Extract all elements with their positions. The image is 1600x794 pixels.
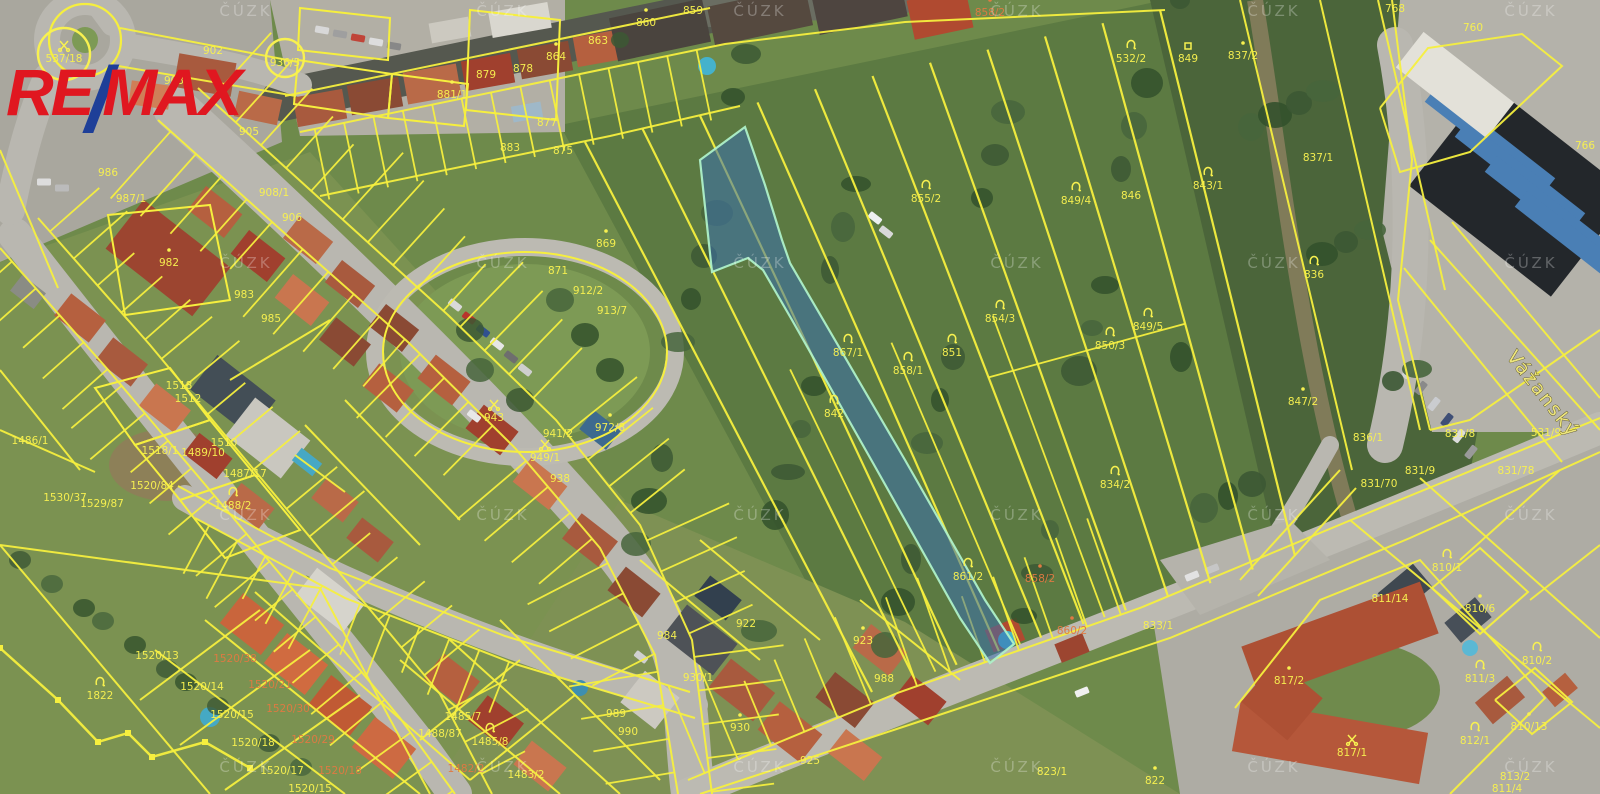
tree-canopy: [731, 44, 761, 64]
parcel-number-label: 846: [1121, 190, 1141, 202]
dot-shape: [738, 713, 742, 717]
parcel-number-label: 811/4: [1492, 783, 1523, 794]
parcel-label: 836/1: [1353, 432, 1383, 444]
parcel-number-label: 986: [98, 167, 118, 179]
tree-canopy: [1170, 342, 1192, 372]
parcel-number-label: 1530/37: [43, 492, 87, 504]
parcel-number-label: 837/1: [1303, 152, 1333, 164]
parcel-number-label: 988: [874, 673, 894, 685]
parcel-label: 1520/14: [180, 681, 224, 693]
parcel-label: 877: [537, 117, 557, 129]
cuzk-watermark: ČÚZK: [990, 253, 1043, 272]
boundary-marker: [125, 730, 131, 736]
boundary-marker: [149, 754, 155, 760]
landuse-symbol-icon: [1478, 594, 1482, 598]
parcel-label: 831/78: [1498, 465, 1535, 477]
tree-canopy: [1354, 220, 1386, 240]
landuse-symbol-icon: [644, 8, 648, 12]
parcel-number-label: 985: [261, 313, 281, 325]
parcel-number-label: 989: [606, 708, 626, 720]
boundary-marker: [202, 739, 208, 745]
tree-canopy: [156, 660, 178, 678]
parcel-number-label: 836: [1304, 269, 1324, 281]
parcel-label: 863: [588, 35, 608, 47]
parcel-number-label: 1485/8: [472, 736, 509, 748]
dot-shape: [644, 8, 648, 12]
parcel-number-label: 812/1: [1460, 735, 1490, 747]
parcel-number-label: 831/8: [1445, 428, 1475, 440]
dot-shape: [554, 42, 558, 46]
parcel-number-label: 858/2: [1025, 573, 1055, 585]
tree-canopy: [651, 444, 673, 472]
parcel-label: 902: [203, 45, 223, 57]
parcel-number-label: 817/2: [1274, 675, 1304, 687]
parcel-number-label: 863: [588, 35, 608, 47]
parcel-number-label: 810/2: [1522, 655, 1552, 667]
cuzk-watermark: ČÚZK: [733, 505, 786, 524]
landuse-symbol-icon: [1287, 666, 1291, 670]
tree-canopy: [73, 599, 95, 617]
tree-canopy: [571, 323, 599, 347]
parcel-label: 987/1: [116, 193, 146, 205]
parcel-number-label: 1485/7: [445, 711, 482, 723]
parcel-label: 906: [282, 212, 302, 224]
parcel-number-label: 867/1: [833, 347, 863, 359]
parcel-number-label: 1487/17: [223, 468, 267, 480]
boundary-marker: [95, 739, 101, 745]
parcel-number-label: 836/1: [1353, 432, 1383, 444]
tree-canopy: [981, 144, 1009, 166]
parcel-number-label: 1520/30: [266, 703, 310, 715]
cuzk-watermark: ČÚZK: [1504, 1, 1557, 20]
parcel-number-label: 1520/18: [318, 765, 362, 777]
dot-shape: [1301, 387, 1305, 391]
parcel-label: 1520/18: [318, 765, 362, 777]
tree-canopy: [1238, 471, 1266, 497]
parcel-label: 988: [874, 673, 894, 685]
landuse-symbol-icon: [167, 248, 171, 252]
parcel-label: 1488/87: [418, 728, 462, 740]
parcel-label: 1485/7: [445, 711, 482, 723]
parcel-label: 811/4: [1492, 783, 1523, 794]
parcel-number-label: 847/2: [1288, 396, 1318, 408]
parcel-label: 1486/1: [12, 435, 49, 447]
landuse-symbol-icon: [861, 626, 865, 630]
parked-car: [37, 179, 51, 186]
cuzk-watermark: ČÚZK: [733, 253, 786, 272]
parcel-number-label: 941/2: [543, 428, 573, 440]
parcel-number-label: 1520/84: [130, 480, 174, 492]
parcel-number-label: 902: [203, 45, 223, 57]
parcel-label: 1520/13: [135, 650, 179, 662]
parcel-number-label: 1488/87: [418, 728, 462, 740]
parcel-number-label: 990: [618, 726, 638, 738]
tree-canopy: [41, 575, 63, 593]
tree-canopy: [1306, 80, 1340, 102]
parcel-number-label: 930: [730, 722, 750, 734]
tree-canopy: [831, 212, 855, 242]
parcel-number-label: 972/8: [595, 422, 625, 434]
landuse-symbol-icon: [1070, 616, 1074, 620]
landuse-symbol-icon: [1527, 712, 1531, 716]
parcel-number-label: 1520/15: [210, 709, 254, 721]
parcel-label: 1520/38: [213, 653, 257, 665]
parcel-label: 1520/15: [288, 783, 332, 794]
cuzk-watermark: ČÚZK: [476, 505, 529, 524]
tree-canopy: [466, 358, 494, 382]
parcel-number-label: 912/2: [573, 285, 603, 297]
parcel-label: 922: [736, 618, 756, 630]
parcel-number-label: 864: [546, 51, 566, 63]
parcel-number-label: 923: [853, 635, 873, 647]
parked-car: [55, 185, 69, 192]
tree-canopy: [871, 632, 899, 658]
landuse-symbol-icon: [608, 413, 612, 417]
tree-canopy: [1061, 356, 1097, 386]
landuse-symbol-icon: [1241, 41, 1245, 45]
parcel-label: 930/1: [683, 672, 713, 684]
tree-canopy: [596, 358, 624, 382]
parcel-number-label: 982: [159, 257, 179, 269]
dot-shape: [604, 229, 608, 233]
dot-shape: [861, 626, 865, 630]
parcel-number-label: 768: [1385, 3, 1405, 15]
parcel-label: 989: [606, 708, 626, 720]
tree-canopy: [681, 288, 701, 310]
parcel-number-label: 1518: [166, 380, 193, 392]
parcel-number-label: 817/1: [1337, 747, 1367, 759]
parcel-label: 913/7: [597, 305, 627, 317]
parcel-label: 768: [1385, 3, 1405, 15]
parcel-label: 903: [164, 75, 184, 87]
parcel-number-label: 1822: [87, 690, 114, 702]
parcel-number-label: 810/13: [1511, 721, 1548, 733]
swimming-pool: [1462, 640, 1478, 656]
dot-shape: [1070, 616, 1074, 620]
parcel-label: 831/9: [1405, 465, 1435, 477]
tree-canopy: [1111, 156, 1131, 182]
parcel-label: 811/14: [1372, 593, 1409, 605]
parcel-number-label: 869: [596, 238, 616, 250]
tree-canopy: [771, 464, 805, 480]
parcel-number-label: 1518/1: [142, 445, 179, 457]
parcel-number-label: 905: [239, 126, 259, 138]
parcel-number-label: 810/6: [1465, 603, 1496, 615]
parcel-number-label: 831/9: [1405, 465, 1435, 477]
parcel-label: 941/2: [543, 428, 573, 440]
tree-canopy: [92, 612, 114, 630]
parcel-label: 831/8: [1445, 428, 1475, 440]
parcel-label: 1520/30: [266, 703, 310, 715]
parcel-number-label: 925: [800, 755, 820, 767]
parcel-number-label: 849/4: [1061, 195, 1092, 207]
parcel-number-label: 811/14: [1372, 593, 1409, 605]
parcel-number-label: 1489/10: [181, 447, 225, 459]
parcel-label: 883: [500, 142, 520, 154]
cuzk-watermark: ČÚZK: [219, 253, 272, 272]
cuzk-watermark: ČÚZK: [1247, 505, 1300, 524]
parcel-number-label: 984: [657, 630, 677, 642]
parcel-label: 1489/10: [181, 447, 225, 459]
parcel-number-label: 833/1: [1143, 620, 1173, 632]
parcel-number-label: 1520/38: [213, 653, 257, 665]
parcel-number-label: 879: [476, 69, 496, 81]
cuzk-watermark: ČÚZK: [733, 1, 786, 20]
tree-canopy: [1382, 371, 1404, 391]
cuzk-watermark: ČÚZK: [476, 1, 529, 20]
parcel-label: 833/1: [1143, 620, 1173, 632]
cuzk-watermark: ČÚZK: [219, 505, 272, 524]
cuzk-watermark: ČÚZK: [219, 1, 272, 20]
parcel-number-label: 842: [824, 408, 844, 420]
cuzk-watermark: ČÚZK: [1247, 253, 1300, 272]
parcel-number-label: 837/2: [1228, 50, 1258, 62]
cuzk-watermark: ČÚZK: [990, 1, 1043, 20]
boundary-marker: [55, 697, 61, 703]
dot-shape: [167, 248, 171, 252]
parcel-label: 984: [657, 630, 677, 642]
parcel-number-label: 760: [1463, 22, 1483, 34]
cuzk-watermark: ČÚZK: [990, 505, 1043, 524]
parcel-label: 912/2: [573, 285, 603, 297]
parcel-number-label: 851: [942, 347, 962, 359]
boundary-marker: [0, 645, 3, 651]
cuzk-watermark: ČÚZK: [476, 253, 529, 272]
parcel-number-label: 831/78: [1498, 465, 1535, 477]
parcel-number-label: 930/1: [683, 672, 713, 684]
parcel-label: 871: [548, 265, 568, 277]
tree-canopy: [721, 88, 745, 106]
parcel-label: 878: [513, 63, 533, 75]
dot-shape: [1478, 594, 1482, 598]
landuse-symbol-icon: [554, 42, 558, 46]
parcel-number-label: 831/70: [1361, 478, 1398, 490]
parcel-number-label: 938: [550, 473, 570, 485]
dot-shape: [1038, 564, 1042, 568]
parcel-number-label: 913/7: [597, 305, 627, 317]
parcel-label: 1518: [166, 380, 193, 392]
parcel-label: 1512: [175, 393, 202, 405]
parcel-number-label: 1520/21: [248, 679, 292, 691]
parcel-label: 905: [239, 126, 259, 138]
parcel-number-label: 881/1: [437, 89, 467, 101]
parcel-label: 875: [553, 145, 573, 157]
dot-shape: [1153, 766, 1157, 770]
parcel-number-label: 1520/13: [135, 650, 179, 662]
parcel-number-label: 861/2: [953, 571, 983, 583]
parcel-number-label: 849/5: [1133, 321, 1163, 333]
parcel-label: 837/1: [1303, 152, 1333, 164]
landuse-symbol-icon: [604, 229, 608, 233]
tree-canopy: [611, 32, 629, 48]
parcel-label: 1520/15: [210, 709, 254, 721]
parcel-number-label: 766: [1575, 140, 1595, 152]
parcel-number-label: 843/1: [1193, 180, 1223, 192]
tree-canopy: [456, 318, 484, 342]
parcel-label: 1487/17: [223, 468, 267, 480]
tree-canopy: [621, 532, 651, 556]
cuzk-watermark: ČÚZK: [1504, 505, 1557, 524]
parcel-number-label: 810/1: [1432, 562, 1462, 574]
parcel-label: 766: [1575, 140, 1595, 152]
parcel-label: 1520/18: [231, 737, 275, 749]
landuse-symbol-icon: [1301, 387, 1305, 391]
parcel-number-label: 811/3: [1465, 673, 1495, 685]
parcel-label: 983: [234, 289, 254, 301]
parcel-number-label: 1520/18: [231, 737, 275, 749]
parcel-number-label: 1520/14: [180, 681, 224, 693]
parcel-number-label: 1520/29: [291, 734, 335, 746]
parcel-number-label: 532/2: [1116, 53, 1146, 65]
cuzk-watermark: ČÚZK: [1504, 757, 1557, 776]
parcel-number-label: 875: [553, 145, 573, 157]
parcel-label: 1518/1: [142, 445, 179, 457]
parcel-label: 760: [1463, 22, 1483, 34]
parcel-label: 879: [476, 69, 496, 81]
parcel-number-label: 834/2: [1100, 479, 1130, 491]
parcel-number-label: 859: [683, 5, 703, 17]
dot-shape: [608, 413, 612, 417]
parcel-number-label: 878: [513, 63, 533, 75]
parcel-number-label: 849: [1178, 53, 1198, 65]
landuse-symbol-icon: [1038, 564, 1042, 568]
parcel-number-label: 860/2: [1057, 625, 1087, 637]
dot-shape: [450, 80, 454, 84]
parcel-label: 908/1: [259, 187, 289, 199]
parcel-label: 1520/29: [291, 734, 335, 746]
parcel-label: 990: [618, 726, 638, 738]
parcel-number-label: 1520/15: [288, 783, 332, 794]
cuzk-watermark: ČÚZK: [1247, 1, 1300, 20]
parcel-number-label: 537/18: [46, 53, 83, 65]
tree-canopy: [506, 388, 534, 412]
parcel-number-label: 903: [164, 75, 184, 87]
listing-map-image: 537/18936/5902903905986987/1982908/19069…: [0, 0, 1600, 794]
parcel-label: 831/70: [1361, 478, 1398, 490]
parcel-label: 985: [261, 313, 281, 325]
tree-canopy: [1190, 493, 1218, 523]
parcel-number-label: 943: [484, 412, 504, 424]
tree-canopy: [1131, 68, 1163, 98]
dot-shape: [1241, 41, 1245, 45]
parcel-number-label: 850/3: [1095, 340, 1125, 352]
cuzk-watermark: ČÚZK: [1247, 757, 1300, 776]
parcel-number-label: 822: [1145, 775, 1165, 787]
parcel-label: 986: [98, 167, 118, 179]
tree-canopy: [1091, 276, 1119, 294]
parcel-number-label: 987/1: [116, 193, 146, 205]
parcel-number-label: 922: [736, 618, 756, 630]
tree-canopy: [1334, 231, 1358, 253]
tree-canopy: [546, 288, 574, 312]
cuzk-watermark: ČÚZK: [733, 757, 786, 776]
parcel-label: 925: [800, 755, 820, 767]
dot-shape: [1287, 666, 1291, 670]
parcel-label: 1520/84: [130, 480, 174, 492]
parcel-number-label: 949/1: [530, 452, 560, 464]
parcel-number-label: 883: [500, 142, 520, 154]
tree-canopy: [1081, 320, 1103, 336]
parcel-number-label: 855/2: [911, 193, 941, 205]
parcel-number-label: 871: [548, 265, 568, 277]
cuzk-watermark: ČÚZK: [476, 757, 529, 776]
cuzk-watermark: ČÚZK: [990, 757, 1043, 776]
parcel-number-label: 860: [636, 17, 656, 29]
parcel-number-label: 1486/1: [12, 435, 49, 447]
parcel-number-label: 858/1: [893, 365, 923, 377]
parcel-number-label: 1512: [175, 393, 202, 405]
dot-shape: [1527, 712, 1531, 716]
landuse-symbol-icon: [1153, 766, 1157, 770]
parcel-label: 1530/37: [43, 492, 87, 504]
cuzk-watermark: ČÚZK: [1504, 253, 1557, 272]
cuzk-watermark: ČÚZK: [219, 757, 272, 776]
landuse-symbol-icon: [738, 713, 742, 717]
parcel-number-label: 906: [282, 212, 302, 224]
parcel-label: 938: [550, 473, 570, 485]
parcel-label: 846: [1121, 190, 1141, 202]
parcel-label: 859: [683, 5, 703, 17]
parcel-label: 1520/21: [248, 679, 292, 691]
parcel-number-label: 854/3: [985, 313, 1015, 325]
parcel-number-label: 983: [234, 289, 254, 301]
parcel-number-label: 877: [537, 117, 557, 129]
cadastral-aerial-map: 537/18936/5902903905986987/1982908/19069…: [0, 0, 1600, 794]
landuse-symbol-icon: [450, 80, 454, 84]
parcel-number-label: 936/5: [270, 57, 300, 69]
parcel-number-label: 908/1: [259, 187, 289, 199]
tree-canopy: [631, 488, 667, 514]
